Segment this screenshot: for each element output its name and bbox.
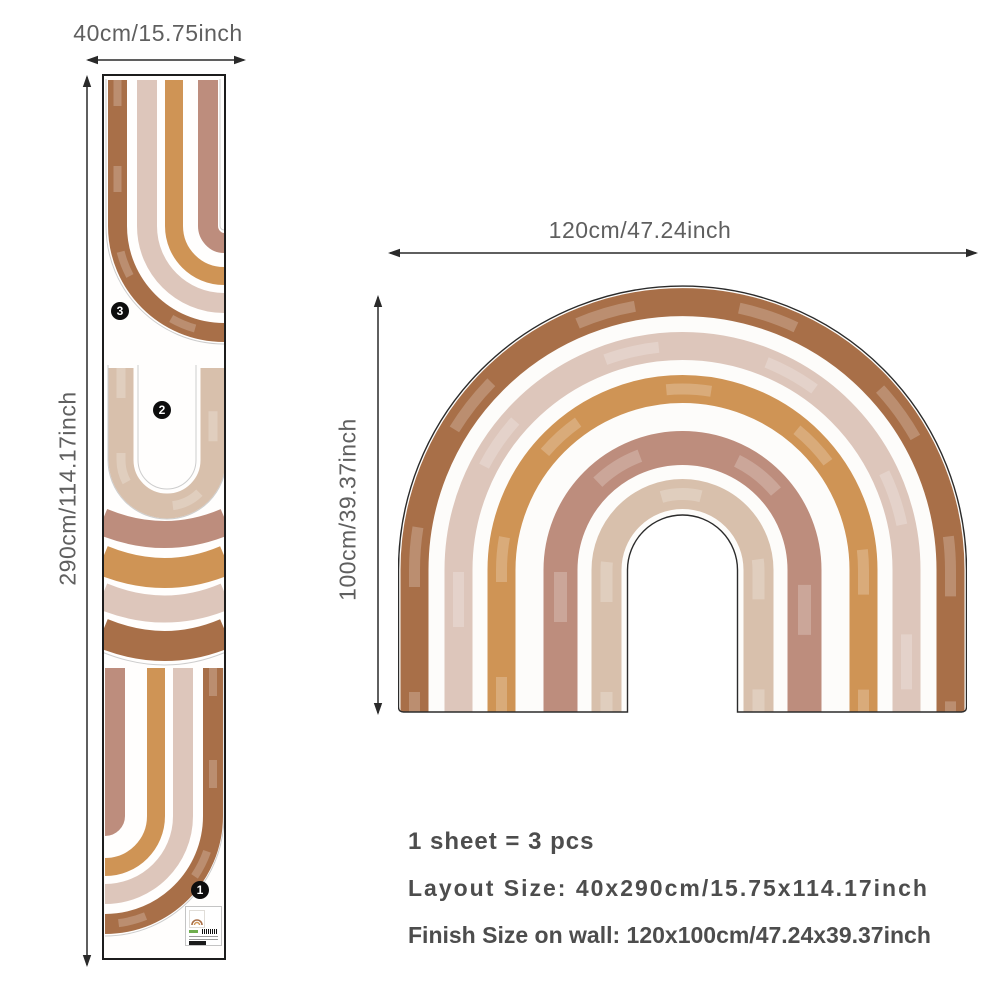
piece-number-badge: 1 bbox=[191, 881, 209, 899]
arrowhead-right bbox=[966, 249, 978, 257]
band-mauve bbox=[208, 80, 224, 243]
band-beige bbox=[607, 494, 759, 712]
diecut-line bbox=[220, 79, 224, 230]
label-rainbow-thumbnail bbox=[189, 910, 205, 928]
band-blush bbox=[104, 596, 224, 609]
piece-number: 1 bbox=[197, 884, 204, 896]
arrowhead-left bbox=[86, 56, 98, 64]
wall-width-arrow bbox=[386, 246, 980, 260]
sheet-height-arrow bbox=[80, 73, 94, 969]
arrowhead-right bbox=[234, 56, 246, 64]
mini-band bbox=[195, 923, 200, 925]
product-dimension-diagram: 40cm/15.75inch 290cm/114.17inch bbox=[0, 0, 1000, 1000]
wall-width-label: 120cm/47.24inch bbox=[520, 217, 760, 244]
mini-rainbow-art bbox=[190, 911, 204, 927]
sheet-width-label: 40cm/15.75inch bbox=[38, 20, 278, 47]
label-black-bar bbox=[189, 941, 206, 945]
arrowhead-left bbox=[388, 249, 400, 257]
sheet-art bbox=[104, 76, 224, 958]
product-label-sticker bbox=[185, 906, 222, 946]
label-text-line bbox=[189, 939, 218, 940]
wall-height-arrow bbox=[371, 293, 385, 717]
piece-number-badge: 3 bbox=[111, 302, 129, 320]
band-beige-u bbox=[121, 368, 213, 506]
label-green-text bbox=[189, 930, 198, 933]
info-sheet-count: 1 sheet = 3 pcs bbox=[408, 828, 594, 856]
assembled-rainbow bbox=[398, 278, 967, 718]
sticker-sheet bbox=[102, 74, 226, 960]
sheet-height-label: 290cm/114.17inch bbox=[55, 369, 82, 609]
arrowhead-up bbox=[83, 75, 91, 87]
info-finish-size: Finish Size on wall: 120x100cm/47.24x39.… bbox=[408, 922, 931, 949]
sheet-width-arrow bbox=[84, 53, 248, 67]
label-text-line bbox=[189, 936, 218, 937]
band-orange bbox=[104, 560, 224, 573]
wall-height-label: 100cm/39.37inch bbox=[335, 390, 362, 630]
piece-number: 2 bbox=[159, 404, 166, 416]
band-mauve bbox=[105, 668, 115, 826]
diecut-line bbox=[138, 365, 196, 489]
piece-number-badge: 2 bbox=[153, 401, 171, 419]
rainbow-art bbox=[398, 278, 967, 718]
arrowhead-up bbox=[374, 295, 382, 307]
piece-number: 3 bbox=[117, 305, 124, 317]
band-mauve bbox=[104, 522, 224, 535]
arrowhead-down bbox=[83, 955, 91, 967]
band-brown bbox=[104, 633, 224, 646]
info-layout-size: Layout Size: 40x290cm/15.75x114.17inch bbox=[408, 875, 929, 902]
label-barcode bbox=[202, 929, 217, 934]
arrowhead-down bbox=[374, 703, 382, 715]
